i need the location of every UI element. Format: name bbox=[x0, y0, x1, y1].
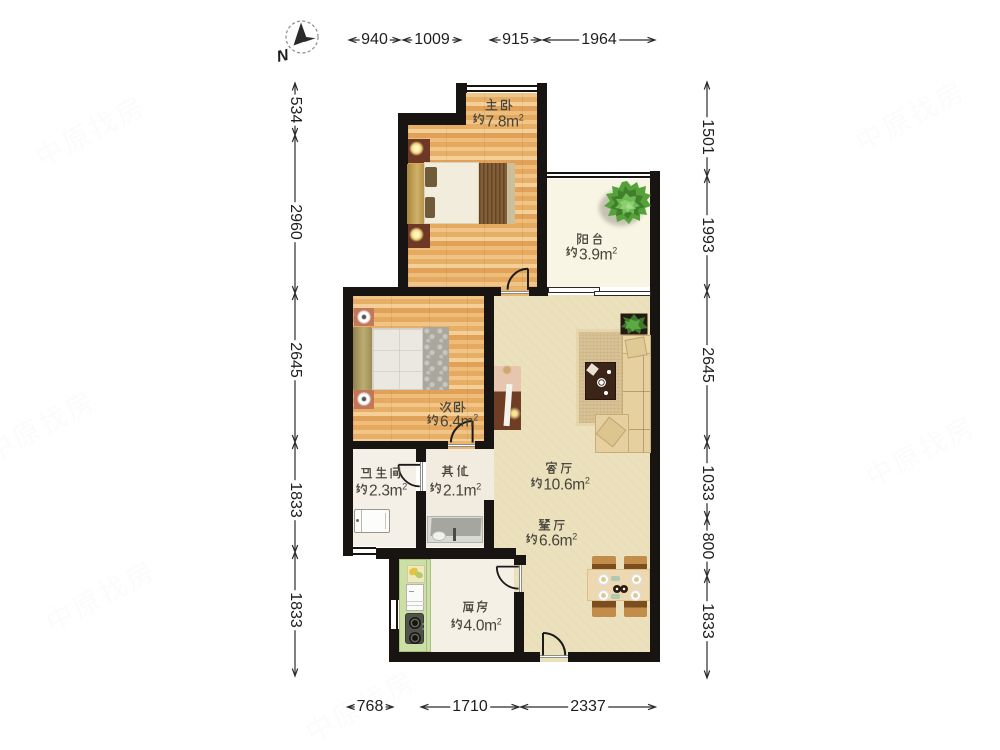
svg-text:N: N bbox=[275, 47, 290, 66]
